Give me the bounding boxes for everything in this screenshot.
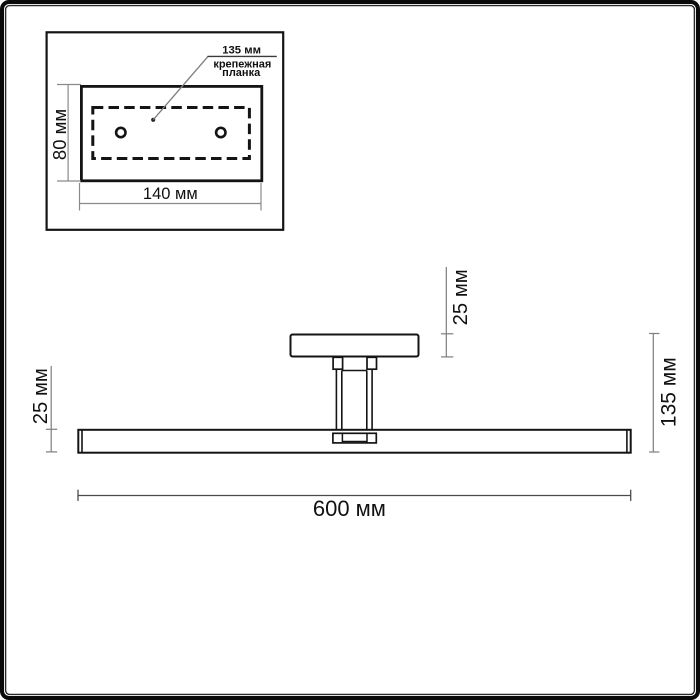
svg-text:25 мм: 25 мм <box>30 368 52 424</box>
svg-text:планка: планка <box>222 67 261 79</box>
svg-text:135 мм: 135 мм <box>657 357 680 427</box>
svg-text:135 мм: 135 мм <box>222 44 261 56</box>
svg-text:80 мм: 80 мм <box>49 109 70 160</box>
svg-text:25 мм: 25 мм <box>450 269 472 325</box>
svg-text:140 мм: 140 мм <box>143 185 198 203</box>
svg-text:600 мм: 600 мм <box>313 496 386 521</box>
